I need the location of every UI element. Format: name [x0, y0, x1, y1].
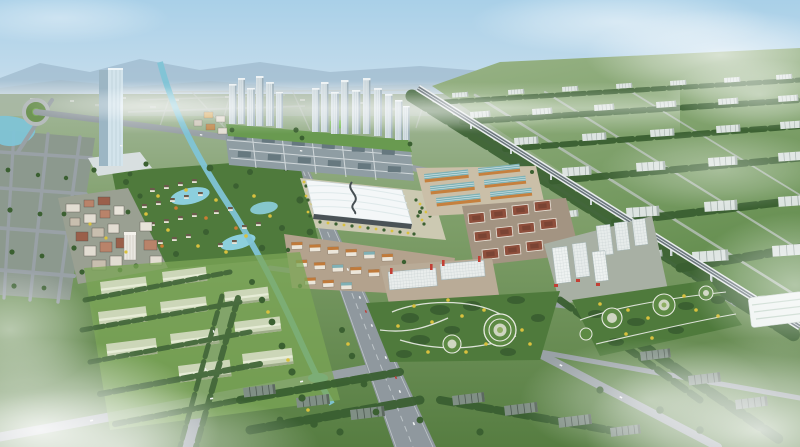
aerial-rendering-canvas: [0, 0, 800, 447]
central-park-green: [366, 291, 560, 362]
central-park: [366, 291, 560, 362]
circular-garden-small: [443, 335, 461, 353]
aerial-rendering: [0, 0, 800, 447]
circular-garden-large: [484, 314, 516, 346]
town-tower: [124, 232, 136, 260]
tower-crown: [108, 68, 123, 70]
